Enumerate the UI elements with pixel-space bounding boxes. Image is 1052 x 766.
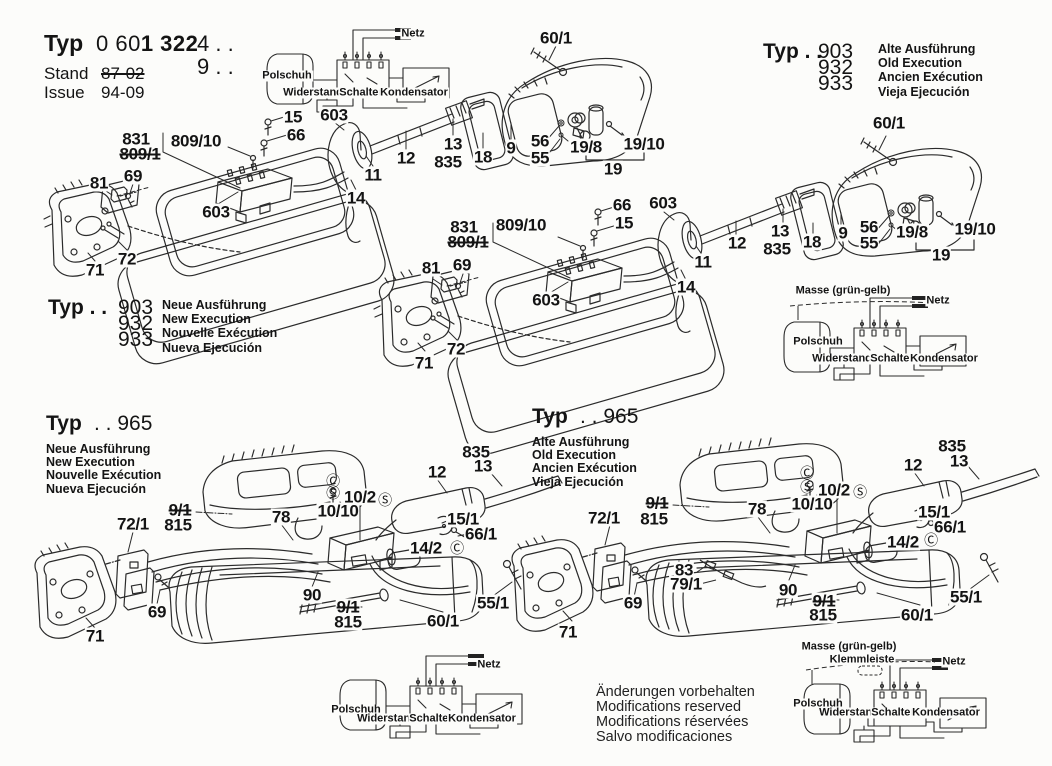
stand-label: Stand <box>44 64 88 84</box>
part-number-label: 81 <box>421 260 441 277</box>
part-number-label: 90 <box>778 582 798 599</box>
part-number-label: 13 <box>770 223 790 240</box>
typ-num: 933 <box>818 72 853 96</box>
wiring-label: Kondensator <box>909 354 979 365</box>
typ-num: . . 965 <box>94 412 152 436</box>
typ-label: Typ <box>44 30 83 57</box>
part-number-label: 78 <box>271 509 291 526</box>
part-number-label: Ⓢ <box>326 486 340 500</box>
part-number-label: 66 <box>286 127 306 144</box>
part-number-label: 71 <box>85 628 105 645</box>
execution-langs: Alte AusführungOld Execution Ancien Exéc… <box>878 42 983 99</box>
part-number-label: Ⓒ <box>924 533 938 547</box>
note-line: Salvo modificaciones <box>596 730 755 745</box>
wiring-label: Polschuh <box>792 337 844 348</box>
part-number-label: 14/2 <box>886 534 920 551</box>
wiring-label: Kondensator <box>379 88 449 99</box>
part-number-label: 66 <box>612 197 632 214</box>
part-number-label: 55/1 <box>476 595 510 612</box>
part-number-label: 9 <box>837 225 848 242</box>
part-number-label: 69 <box>452 257 472 274</box>
typ-num: . . 965 <box>580 405 638 429</box>
typ-word: Typ . . <box>48 296 107 320</box>
part-number-label: 71 <box>558 624 578 641</box>
part-number-label: 809/1 <box>118 146 161 163</box>
part-number-label: Ⓒ <box>450 541 464 555</box>
part-number-label: 55/1 <box>949 589 983 606</box>
part-number-label: 809/1 <box>446 234 489 251</box>
part-number-label: 12 <box>727 235 747 252</box>
typ-num: 933 <box>118 328 153 352</box>
part-number-label: 60/1 <box>426 613 460 630</box>
part-number-label: 18 <box>473 149 493 166</box>
part-number-label: 10/10 <box>790 496 833 513</box>
wiring-label: Masse (grün-gelb) <box>795 286 892 297</box>
part-number-label: 56 <box>530 133 550 150</box>
wiring-label: Widerstand <box>811 354 873 365</box>
part-number-label: 12 <box>427 464 447 481</box>
note-line: Modifications réservées <box>596 715 755 730</box>
part-number-label: 603 <box>531 292 560 309</box>
execution-langs: Neue AusführungNew Execution Nouvelle Ex… <box>162 298 277 355</box>
wiring-label: Netz <box>925 296 950 307</box>
part-number-label: 603 <box>319 107 348 124</box>
part-number-label: 69 <box>123 168 143 185</box>
wiring-label: Kondensator <box>447 714 517 725</box>
wiring-label: Netz <box>400 29 425 40</box>
part-number-label: 72 <box>446 341 466 358</box>
part-number-label: Ⓢ <box>800 480 814 494</box>
part-number-label: 10/10 <box>316 503 359 520</box>
part-number-label: 19/8 <box>569 139 603 156</box>
part-number-label: 14/2 <box>409 540 443 557</box>
part-number-label: 60/1 <box>872 115 906 132</box>
type-code-block: Typ 0 601 322 4 . . 9 . . Stand 87-02 Is… <box>44 28 294 108</box>
part-number-label: 18 <box>802 234 822 251</box>
wiring-label: Schalter <box>869 354 914 365</box>
part-number-label: 603 <box>201 204 230 221</box>
part-number-label: 835 <box>433 154 462 171</box>
execution-langs: Neue AusführungNew Execution Nouvelle Ex… <box>46 443 161 496</box>
part-number-label: 19 <box>603 161 623 178</box>
part-number-label: 14 <box>676 279 696 296</box>
part-number-label: 12 <box>396 150 416 167</box>
part-number-label: 72/1 <box>587 510 621 527</box>
part-number-label: 78 <box>747 501 767 518</box>
wiring-label: Netz <box>941 657 966 668</box>
part-number-label: Ⓢ <box>853 485 867 499</box>
part-number-label: 69 <box>147 604 167 621</box>
part-number-label: 55 <box>859 235 879 252</box>
part-number-label: 13 <box>949 453 969 470</box>
part-number-label: 60/1 <box>900 607 934 624</box>
type-code: 0 601 322 <box>96 31 198 57</box>
stand-value: 87-02 <box>101 64 144 84</box>
part-number-label: 809/10 <box>170 133 222 150</box>
part-number-label: 60/1 <box>539 30 573 47</box>
part-number-label: 15 <box>283 109 303 126</box>
part-number-label: 19 <box>931 247 951 264</box>
part-number-label: 815 <box>333 614 362 631</box>
parts-diagram-page: 60/11566603831809/10809/1816960371721213… <box>0 0 1052 766</box>
wiring-label: Masse (grün-gelb) <box>801 642 898 653</box>
part-number-label: 72 <box>117 251 137 268</box>
typ-word: Typ <box>532 405 568 429</box>
part-number-label: 15 <box>614 215 634 232</box>
part-number-label: 19/10 <box>622 136 665 153</box>
issue-value: 94-09 <box>101 83 144 103</box>
wiring-label: Schalter <box>338 88 383 99</box>
part-number-label: 71 <box>85 262 105 279</box>
part-number-label: 66/1 <box>464 526 498 543</box>
part-number-label: 69 <box>623 595 643 612</box>
part-number-label: 13 <box>443 136 463 153</box>
wiring-label: Netz <box>476 660 501 671</box>
part-number-label: Ⓢ <box>378 493 392 507</box>
part-number-label: 12 <box>903 457 923 474</box>
part-number-label: 19/8 <box>895 224 929 241</box>
part-number-label: 79/1 <box>669 576 703 593</box>
part-number-label: 81 <box>89 175 109 192</box>
wiring-label: Schalter <box>870 708 915 719</box>
part-number-label: Ⓒ <box>800 466 814 480</box>
part-number-label: 13 <box>473 458 493 475</box>
part-number-label: 815 <box>639 511 668 528</box>
part-number-label: 815 <box>163 517 192 534</box>
part-number-label: 19/10 <box>953 221 996 238</box>
part-number-label: 72/1 <box>116 516 150 533</box>
part-number-label: 835 <box>762 241 791 258</box>
wiring-label: Kondensator <box>911 708 981 719</box>
typ-word: Typ . . <box>763 40 822 64</box>
note-line: Modifications reserved <box>596 700 755 715</box>
part-number-label: 14 <box>346 190 366 207</box>
part-number-label: 9 <box>505 140 516 157</box>
part-number-label: 603 <box>648 195 677 212</box>
part-number-label: 90 <box>302 587 322 604</box>
part-number-label: 11 <box>693 254 712 271</box>
part-number-label: 809/10 <box>495 217 547 234</box>
wiring-label: Klemmleiste <box>829 655 896 666</box>
typ-word: Typ <box>46 412 82 436</box>
execution-langs: Alte AusführungOld Execution Ancien Exéc… <box>532 436 637 489</box>
issue-label: Issue <box>44 83 85 103</box>
part-number-label: 55 <box>530 150 550 167</box>
connector-cable-83 <box>697 560 766 587</box>
part-number-label: 815 <box>808 607 837 624</box>
part-number-label: 11 <box>363 167 382 184</box>
part-number-label: 71 <box>414 355 434 372</box>
note-line: Änderungen vorbehalten <box>596 685 755 700</box>
modifications-note: Änderungen vorbehalten Modifications res… <box>596 685 755 745</box>
type-variant-2: 9 . . <box>197 54 234 80</box>
